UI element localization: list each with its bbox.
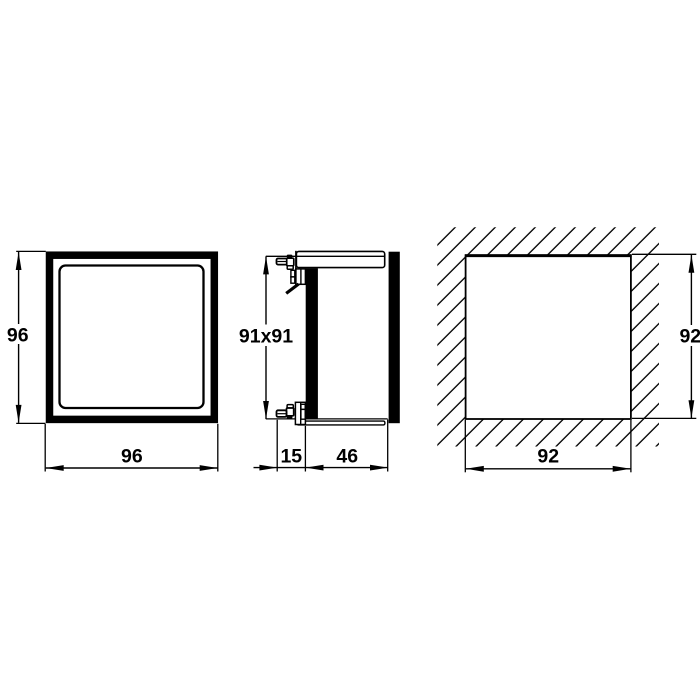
svg-text:92: 92 — [537, 445, 559, 467]
svg-text:91x91: 91x91 — [239, 326, 293, 348]
svg-text:96: 96 — [7, 325, 29, 347]
svg-text:92: 92 — [679, 326, 700, 348]
svg-text:96: 96 — [121, 445, 143, 467]
svg-text:46: 46 — [336, 445, 358, 467]
svg-text:15: 15 — [280, 445, 302, 467]
